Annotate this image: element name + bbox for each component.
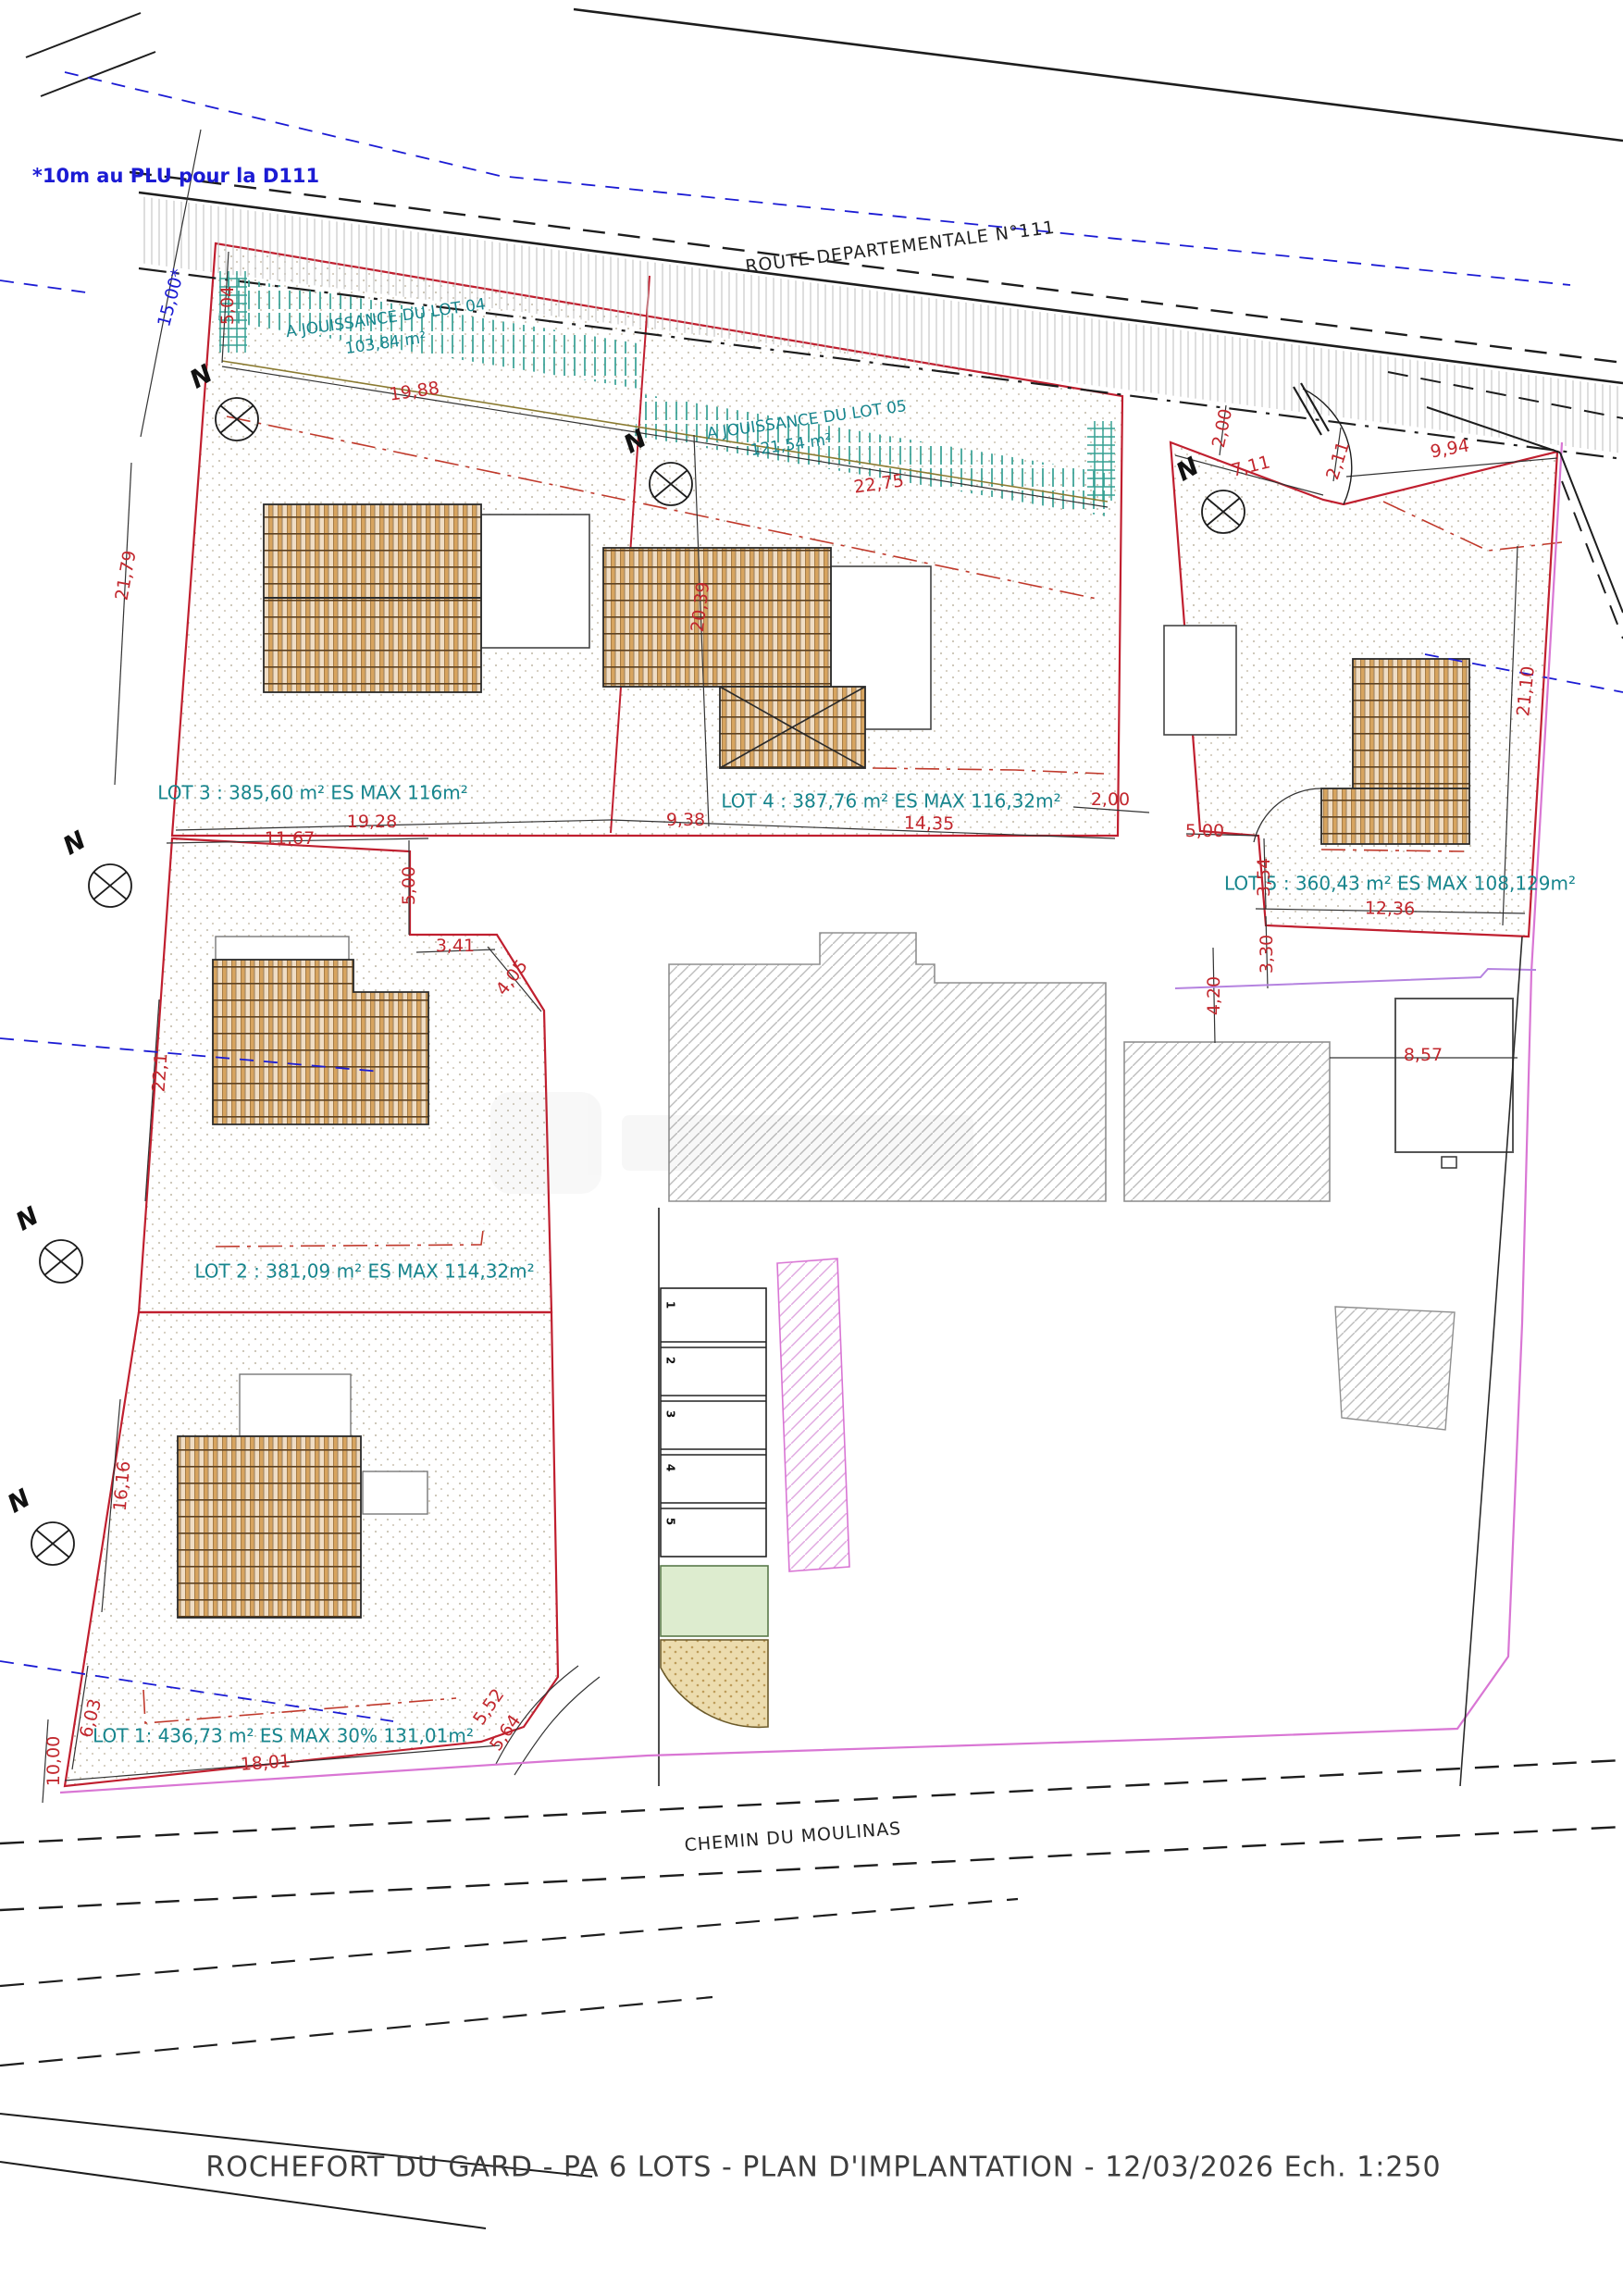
plu-note: *10m au PLU pour la D111 xyxy=(32,166,319,186)
parking-stall-number: 3 xyxy=(664,1410,676,1418)
dim-5-04: 5,04 xyxy=(219,286,238,325)
tan-zone xyxy=(661,1640,768,1727)
violet-hatch-strip xyxy=(777,1259,849,1571)
green-zone xyxy=(661,1566,768,1636)
dim-5-00-lot2: 5,00 xyxy=(401,866,419,905)
dim-2-00-gap: 2,00 xyxy=(1091,791,1130,810)
dim-11-67: 11,67 xyxy=(265,830,315,849)
dim-9-38: 9,38 xyxy=(666,812,705,830)
dim-10-00: 10,00 xyxy=(45,1736,64,1786)
dim-19-28: 19,28 xyxy=(347,813,397,832)
dim-18-01: 18,01 xyxy=(240,1753,291,1775)
site-plan-linework xyxy=(0,0,1623,2296)
dim-3-54: 3,54 xyxy=(1256,858,1274,897)
dim-14-35: 14,35 xyxy=(904,815,955,835)
parking-stall-number: 5 xyxy=(664,1518,676,1525)
dim-8-57: 8,57 xyxy=(1404,1047,1443,1065)
dim-4-20: 4,20 xyxy=(1206,976,1224,1015)
lot1-label: LOT 1: 436,73 m² ES MAX 30% 131,01m² xyxy=(93,1727,474,1746)
dim-3-30: 3,30 xyxy=(1258,935,1277,974)
site-plan-sheet: *10m au PLU pour la D111 ROUTE DEPARTEME… xyxy=(0,0,1623,2296)
plan-title: ROCHEFORT DU GARD - PA 6 LOTS - PLAN D'I… xyxy=(205,2153,1441,2182)
lot3-label: LOT 3 : 385,60 m² ES MAX 116m² xyxy=(157,784,467,803)
dim-3-41: 3,41 xyxy=(436,937,475,956)
lot2-label: LOT 2 : 381,09 m² ES MAX 114,32m² xyxy=(194,1262,534,1282)
parking-stall-number: 2 xyxy=(664,1357,676,1364)
dim-22-1: 22,1 xyxy=(151,1052,172,1093)
dim-5-00-lot5: 5,00 xyxy=(1185,823,1224,841)
lot5-label: LOT 5 : 360,43 m² ES MAX 108,129m² xyxy=(1224,875,1576,894)
lot4-label: LOT 4 : 387,76 m² ES MAX 116,32m² xyxy=(721,792,1060,812)
parking-stall-number: 1 xyxy=(664,1301,676,1309)
dim-12-36: 12,36 xyxy=(1365,900,1416,920)
parking-stall-number: 4 xyxy=(664,1464,676,1471)
